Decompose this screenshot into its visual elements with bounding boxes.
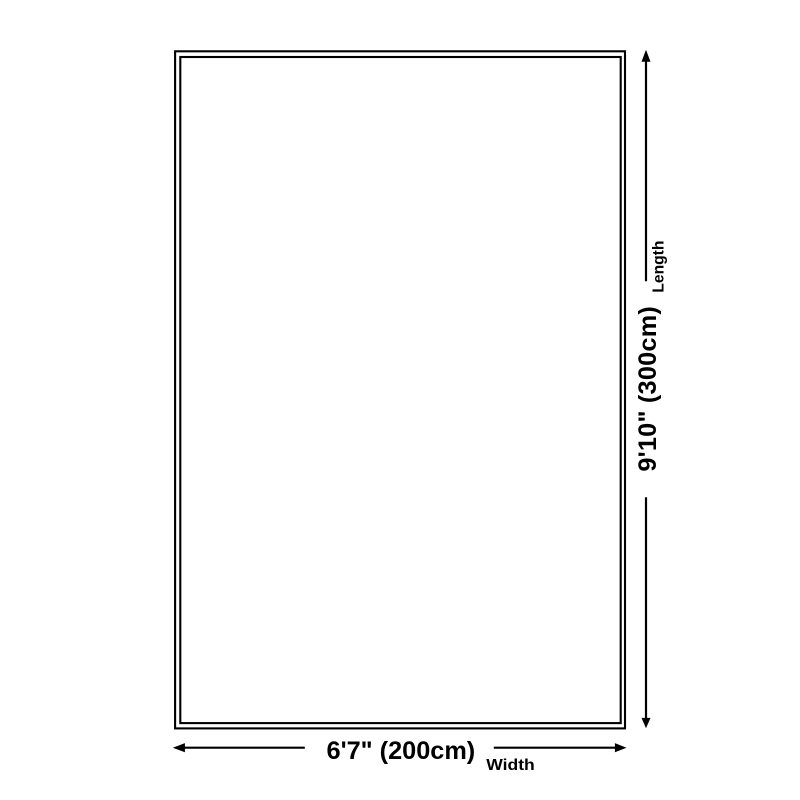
svg-text:6'7" (200cm): 6'7" (200cm) bbox=[327, 737, 476, 765]
svg-text:Width: Width bbox=[486, 757, 535, 774]
svg-text:9'10" (300cm): 9'10" (300cm) bbox=[634, 306, 662, 472]
svg-text:Length: Length bbox=[651, 241, 668, 293]
